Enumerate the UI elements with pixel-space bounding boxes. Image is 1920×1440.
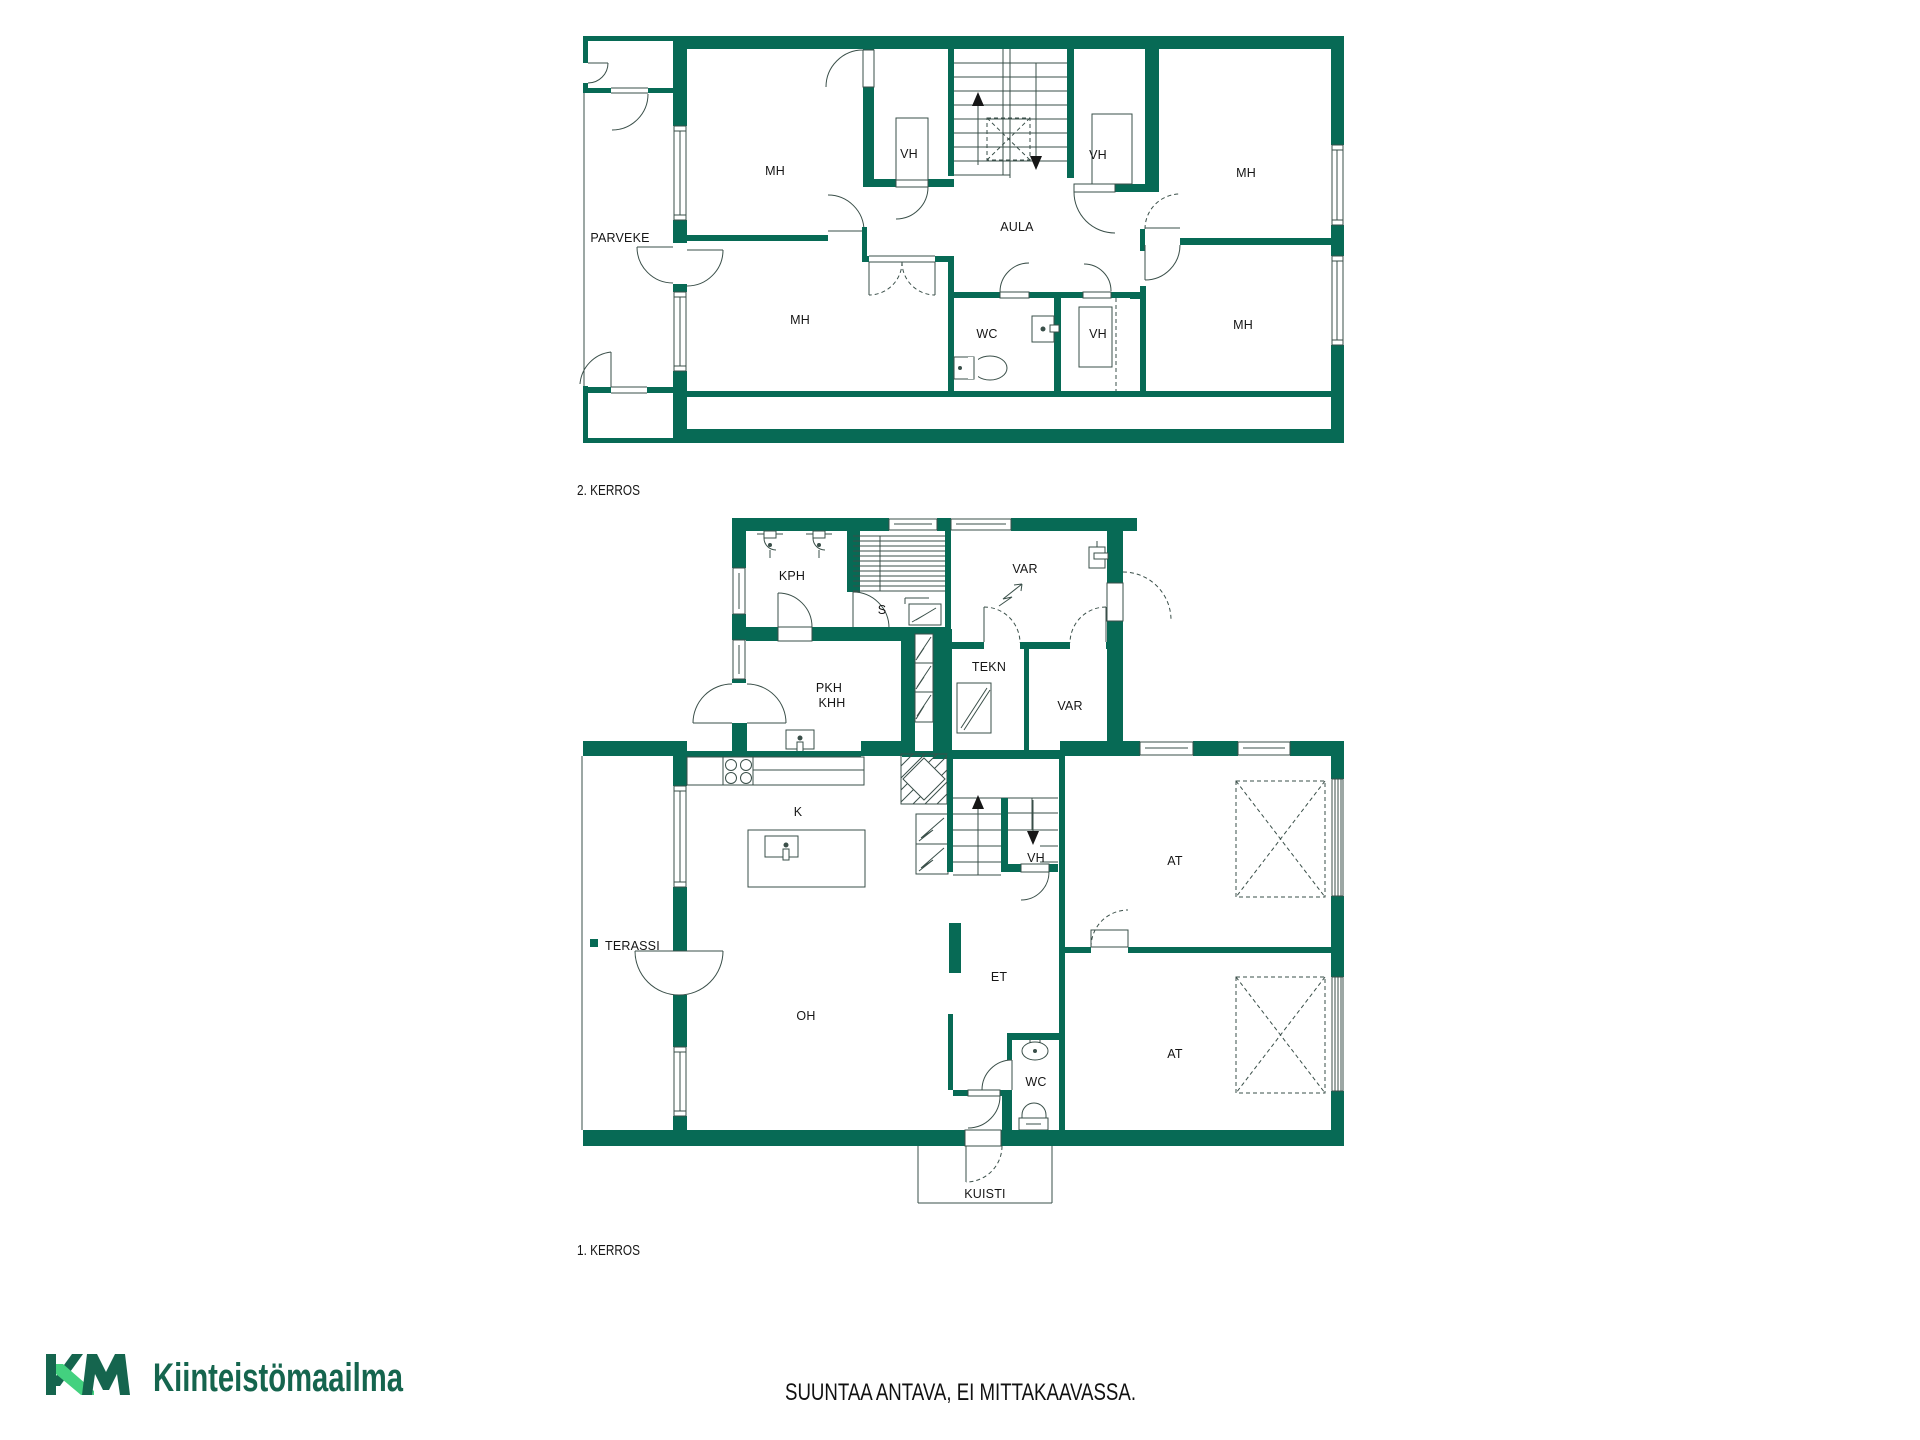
svg-text:OH: OH	[796, 1009, 815, 1023]
svg-text:TERASSI: TERASSI	[605, 939, 660, 953]
svg-text:MH: MH	[765, 164, 785, 178]
svg-text:VAR: VAR	[1057, 699, 1082, 713]
svg-text:ET: ET	[991, 970, 1008, 984]
svg-text:KUISTI: KUISTI	[964, 1187, 1005, 1201]
svg-text:K: K	[794, 805, 803, 819]
svg-text:PARVEKE: PARVEKE	[590, 231, 649, 245]
svg-text:MH: MH	[1236, 166, 1256, 180]
svg-text:AT: AT	[1167, 1047, 1183, 1061]
svg-text:VH: VH	[1089, 148, 1107, 162]
svg-text:Kiinteistömaailma: Kiinteistömaailma	[153, 1356, 404, 1400]
svg-text:VAR: VAR	[1012, 562, 1037, 576]
svg-text:WC: WC	[976, 327, 997, 341]
svg-text:PKH: PKH	[816, 681, 842, 695]
svg-text:AT: AT	[1167, 854, 1183, 868]
svg-text:1. KERROS: 1. KERROS	[577, 1242, 640, 1259]
svg-text:VH: VH	[1027, 851, 1045, 865]
svg-text:KHH: KHH	[819, 696, 846, 710]
svg-text:S: S	[878, 603, 887, 617]
svg-text:WC: WC	[1025, 1075, 1046, 1089]
svg-text:KPH: KPH	[779, 569, 805, 583]
svg-text:VH: VH	[1089, 327, 1107, 341]
svg-text:TEKN: TEKN	[972, 660, 1006, 674]
svg-text:SUUNTAA ANTAVA, EI MITTAKAAVAS: SUUNTAA ANTAVA, EI MITTAKAAVASSA.	[785, 1379, 1136, 1406]
svg-text:VH: VH	[900, 147, 918, 161]
svg-text:MH: MH	[790, 313, 810, 327]
svg-text:2. KERROS: 2. KERROS	[577, 482, 640, 499]
svg-text:AULA: AULA	[1000, 220, 1034, 234]
svg-text:MH: MH	[1233, 318, 1253, 332]
